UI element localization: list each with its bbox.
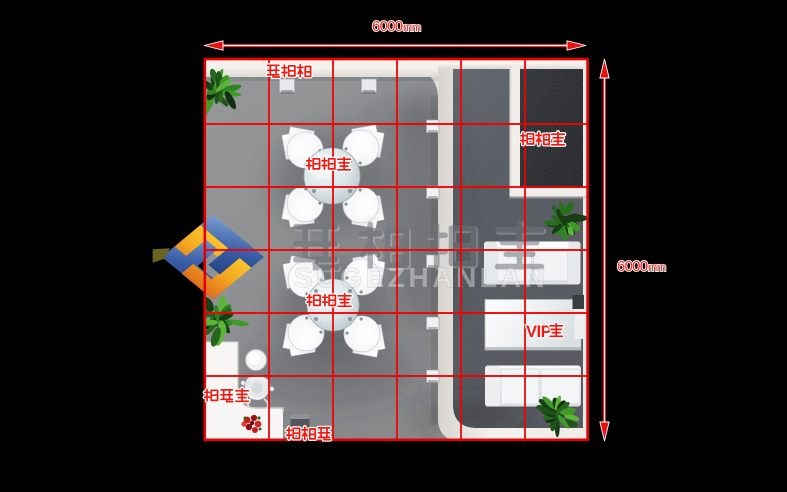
svg-text:6000mm: 6000mm xyxy=(617,259,666,275)
svg-text:VIP: VIP xyxy=(526,323,552,341)
svg-text:6000mm: 6000mm xyxy=(372,19,421,35)
